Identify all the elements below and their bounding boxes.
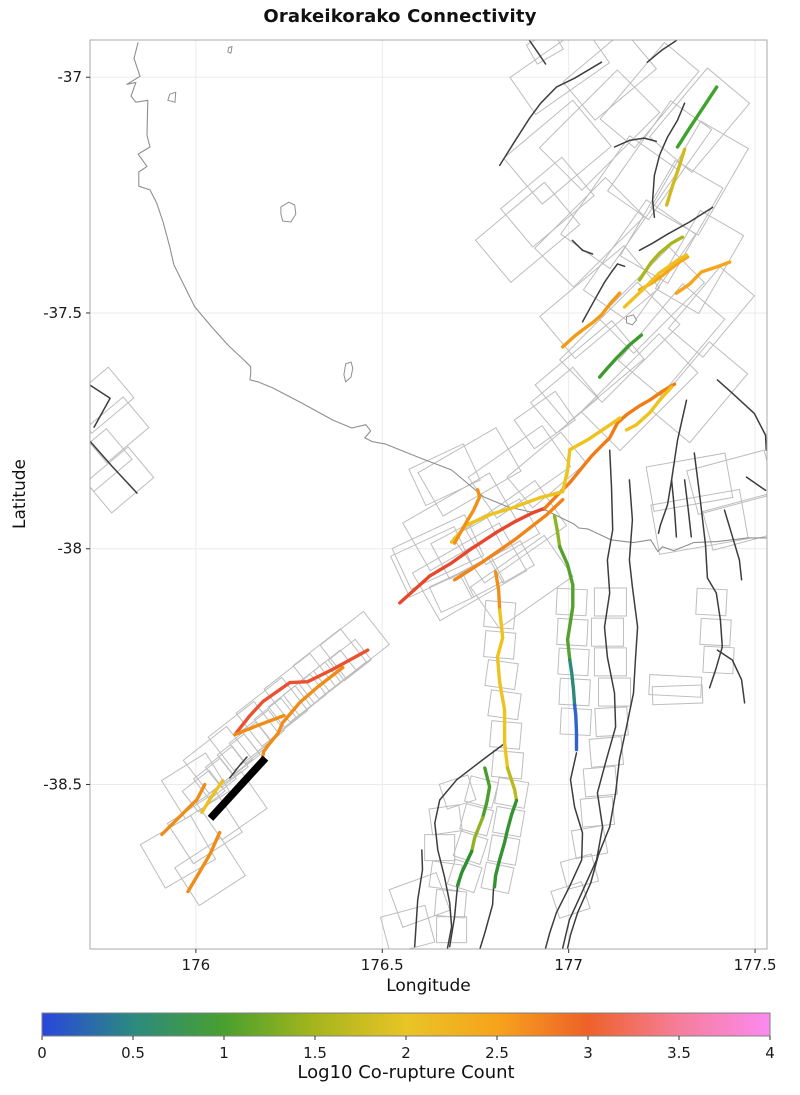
colorbar-tick-label: 1 — [219, 1044, 229, 1062]
fault-trace-black — [685, 480, 692, 537]
fault-polygon — [66, 367, 134, 433]
fault-polygon — [535, 178, 645, 288]
fault-polygon — [453, 831, 488, 864]
fault-polygon — [380, 905, 434, 954]
fault-polygon — [535, 321, 644, 424]
fault-polygon — [560, 282, 680, 402]
fault-polygon — [429, 805, 462, 835]
island — [228, 47, 232, 54]
plot-border — [90, 40, 767, 949]
figure-title: Orakeikorako Connectivity — [0, 6, 800, 27]
fault-polygon — [563, 30, 656, 120]
fault-polygon — [700, 618, 731, 646]
colorbar-tick-label: 1.5 — [303, 1044, 327, 1062]
fault-polygon — [650, 68, 750, 172]
co-rupture-trace — [483, 768, 490, 818]
fault-polygon — [175, 838, 246, 906]
map-plot: 176176.5177177.5-37-37.5-38-38.500.511.5… — [0, 0, 800, 1095]
co-rupture-trace — [667, 149, 685, 205]
fault-trace-black — [747, 477, 766, 490]
co-rupture-layer — [162, 87, 730, 891]
colorbar-tick-label: 4 — [765, 1044, 775, 1062]
co-rupture-trace — [575, 705, 577, 750]
colorbar-tick-label: 0.5 — [121, 1044, 145, 1062]
fault-polygon — [418, 428, 521, 516]
fault-polygon — [595, 707, 628, 737]
co-rupture-trace — [676, 262, 729, 293]
co-rupture-trace — [495, 801, 517, 887]
fault-polygon — [140, 816, 215, 888]
colorbar-tick-label: 3 — [583, 1044, 593, 1062]
x-axis-label: Longitude — [90, 976, 767, 996]
y-tick-label: -38 — [58, 540, 83, 558]
colorbar: 00.511.522.533.54 — [37, 1013, 775, 1062]
fault-trace-black — [546, 753, 583, 948]
fault-polygon — [264, 653, 336, 722]
co-rupture-trace — [563, 293, 620, 347]
fault-trace-black — [530, 41, 546, 65]
fault-polygon — [591, 618, 623, 646]
fault-polygon — [526, 30, 563, 64]
fault-trace-black — [717, 650, 744, 703]
co-rupture-trace — [570, 660, 575, 705]
y-axis-label: Latitude — [10, 414, 30, 574]
fault-polygon — [392, 515, 484, 590]
fault-trace-black — [615, 138, 657, 147]
colorbar-tick-label: 2 — [401, 1044, 411, 1062]
fault-trace-black — [647, 41, 676, 63]
x-tick-label: 176 — [182, 956, 211, 974]
x-tick-label: 177.5 — [734, 956, 777, 974]
co-rupture-trace — [496, 572, 500, 610]
fault-polygon — [540, 246, 660, 359]
island — [627, 315, 637, 325]
co-rupture-trace — [235, 650, 368, 734]
fault-polygon — [68, 429, 132, 492]
fault-trace-black — [480, 885, 494, 950]
fault-polygon — [531, 367, 599, 433]
fault-polygon — [86, 447, 154, 513]
island — [168, 92, 176, 102]
fault-polygon — [81, 397, 149, 463]
fault-trace-black — [717, 380, 766, 450]
orakeikorako-fault-highlight — [213, 761, 263, 816]
island — [281, 202, 296, 222]
y-tick-label: -38.5 — [43, 775, 82, 793]
fault-polygon — [696, 588, 727, 616]
colorbar-tick-label: 0 — [37, 1044, 47, 1062]
island — [344, 362, 353, 382]
y-tick-label: -37.5 — [43, 304, 82, 322]
fault-polygon — [557, 618, 588, 646]
fault-trace-layer — [90, 41, 766, 950]
fault-trace-black — [694, 453, 722, 688]
fault-trace-black — [415, 850, 423, 947]
co-rupture-trace — [458, 851, 472, 885]
co-rupture-trace — [600, 335, 642, 377]
co-rupture-trace — [455, 490, 480, 543]
colorbar-bar — [42, 1013, 770, 1036]
fault-trace-black — [572, 240, 592, 254]
fault-polygon — [580, 796, 614, 827]
fault-trace-black — [435, 745, 503, 948]
fault-polygon — [594, 588, 626, 616]
fault-polygon — [560, 854, 598, 889]
colorbar-tick-label: 3.5 — [667, 1044, 691, 1062]
fault-polygon — [510, 26, 610, 114]
fault-polygon — [476, 182, 580, 282]
x-tick-label: 176.5 — [361, 956, 404, 974]
colorbar-tick-label: 2.5 — [485, 1044, 509, 1062]
figure: 176176.5177177.5-37-37.5-38-38.500.511.5… — [0, 0, 800, 1095]
co-rupture-trace — [555, 516, 560, 547]
fault-polygon — [389, 873, 450, 928]
colorbar-label: Log10 Co-rupture Count — [42, 1062, 770, 1083]
fault-polygon — [558, 648, 589, 676]
x-tick-label: 177 — [554, 956, 583, 974]
map-content — [66, 26, 780, 954]
fault-polygon-layer — [66, 26, 780, 954]
co-rupture-trace — [560, 547, 573, 660]
grid-layer — [90, 40, 767, 949]
fault-polygon — [540, 70, 660, 190]
y-tick-label: -37 — [58, 68, 83, 86]
